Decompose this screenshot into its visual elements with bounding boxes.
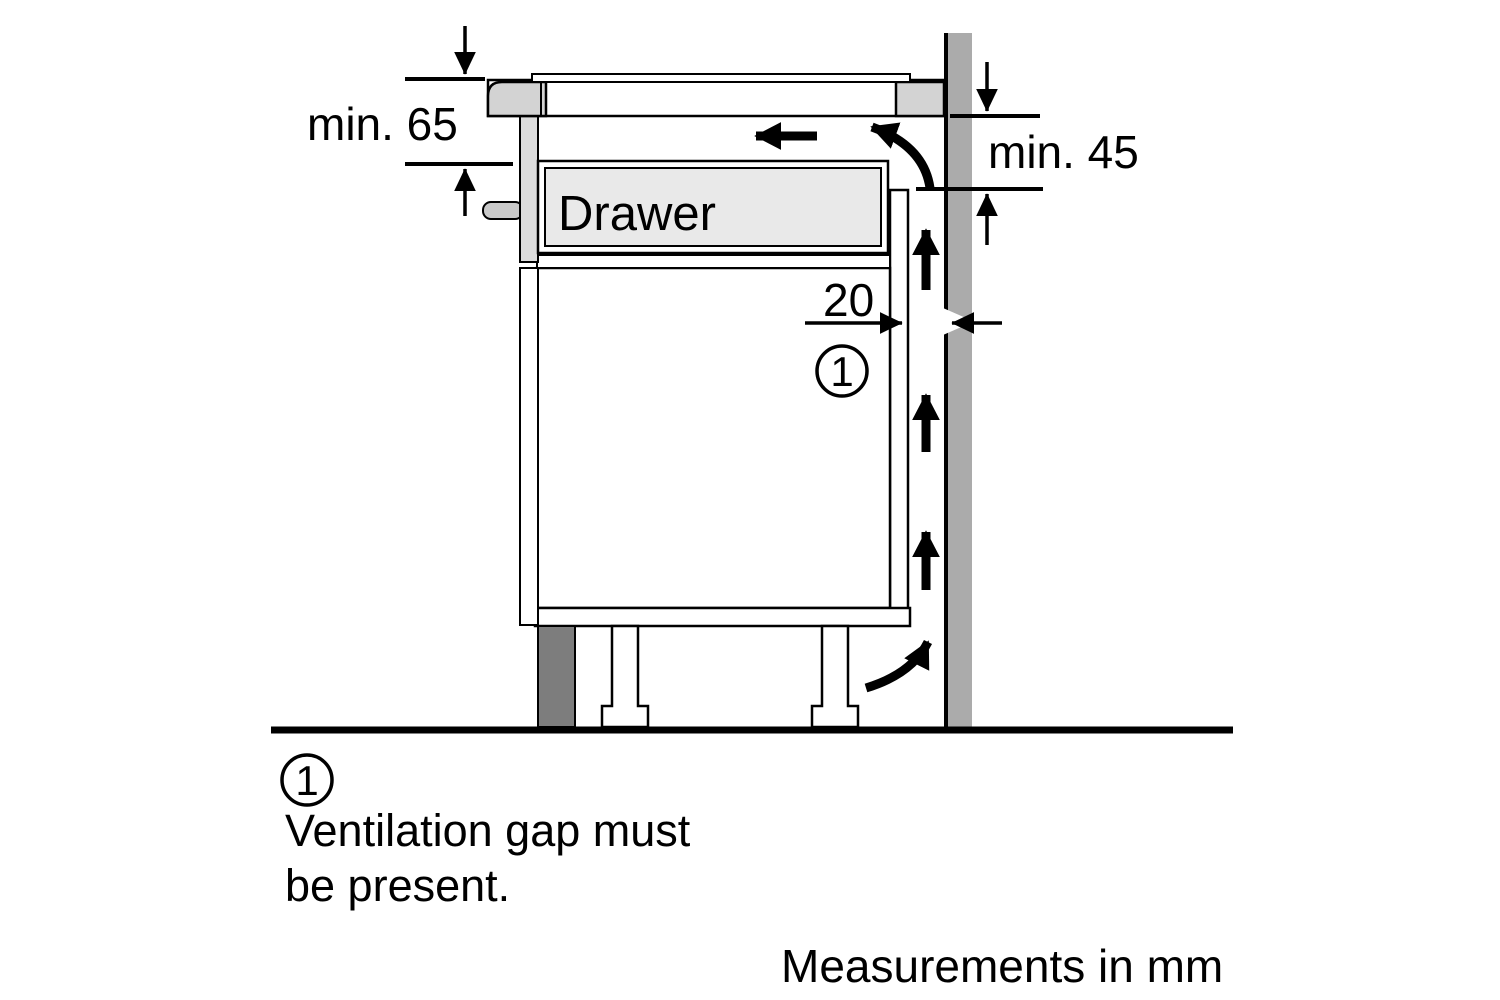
drawer: Drawer — [538, 161, 888, 253]
dim-label-20: 20 — [823, 274, 874, 326]
callout-1-legend-number: 1 — [295, 757, 318, 804]
footnote: 1 Ventilation gap must be present. — [282, 755, 691, 911]
worktop-block-left — [488, 82, 546, 116]
dim-label-min-45: min. 45 — [988, 126, 1139, 178]
plinth — [538, 626, 575, 727]
dim-label-min-65: min. 65 — [307, 98, 458, 150]
airflow-arrow-curve-bottom-icon — [866, 642, 928, 688]
worktop-band — [488, 80, 946, 116]
cabinet-back-panel — [890, 190, 908, 610]
cabinet-bottom-panel — [535, 608, 910, 626]
hob-glass — [532, 74, 910, 82]
hob-front-trim — [520, 116, 538, 262]
callout-1-diagram: 1 — [817, 346, 867, 396]
cabinet-foot-right — [812, 626, 858, 727]
drawer-label: Drawer — [558, 187, 716, 241]
dimension-min-65: min. 65 — [307, 26, 513, 216]
footnote-line-2: be present. — [285, 860, 510, 911]
drawer-shelf-board — [537, 255, 890, 268]
units-note: Measurements in mm — [781, 940, 1223, 992]
wall — [943, 33, 974, 727]
callout-1-number: 1 — [830, 348, 853, 395]
worktop-block-right — [896, 82, 944, 116]
installation-diagram: Drawer min. 65 min. 45 20 1 1 — [0, 0, 1500, 1000]
cabinet — [520, 190, 910, 727]
footnote-line-1: Ventilation gap must — [285, 805, 691, 856]
diagram-canvas: Drawer min. 65 min. 45 20 1 1 — [0, 0, 1500, 1000]
hob-knob — [483, 202, 523, 219]
cabinet-foot-left — [602, 626, 648, 727]
cabinet-front-edge — [520, 268, 538, 625]
